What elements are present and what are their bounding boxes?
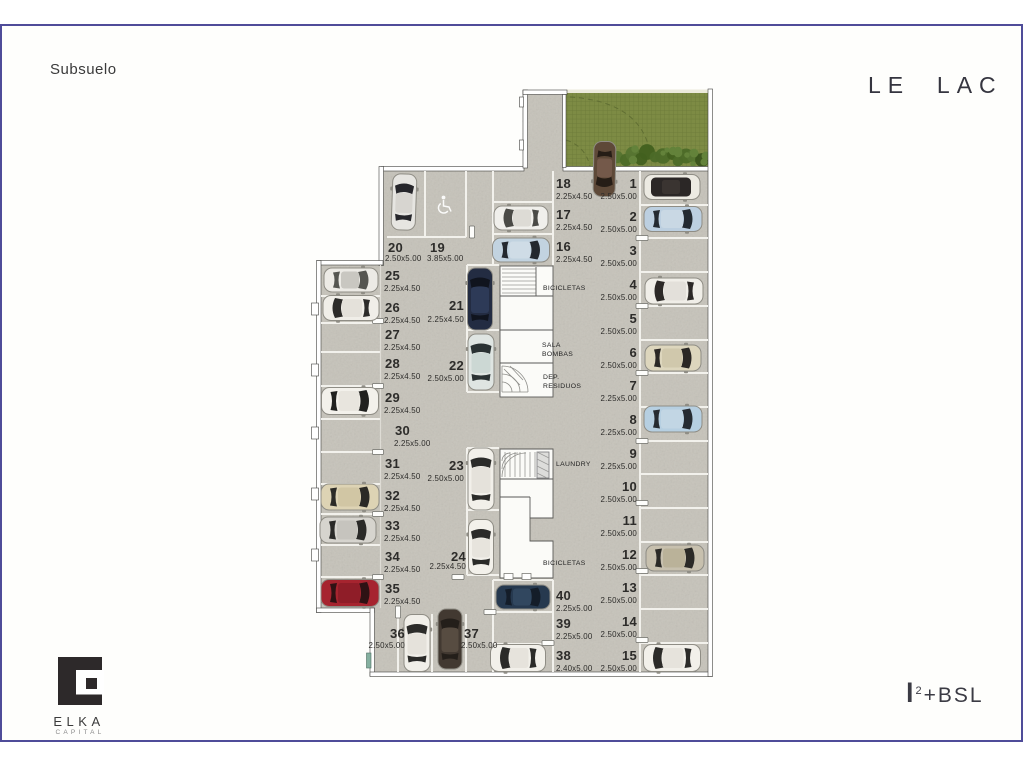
- svg-text:27: 27: [385, 327, 400, 342]
- svg-text:34: 34: [385, 549, 401, 564]
- svg-text:28: 28: [385, 356, 400, 371]
- svg-text:DEP.: DEP.: [543, 374, 559, 381]
- svg-text:29: 29: [385, 390, 400, 405]
- svg-text:2.25x5.00: 2.25x5.00: [394, 439, 431, 448]
- svg-text:2.25x4.50: 2.25x4.50: [556, 223, 593, 232]
- svg-text:2.50x5.00: 2.50x5.00: [428, 374, 465, 383]
- svg-text:2.50x5.00: 2.50x5.00: [601, 630, 638, 639]
- svg-text:2.50x5.00: 2.50x5.00: [601, 596, 638, 605]
- svg-text:LAUNDRY: LAUNDRY: [556, 461, 591, 468]
- svg-text:2.50x5.00: 2.50x5.00: [601, 529, 638, 538]
- svg-text:33: 33: [385, 518, 400, 533]
- svg-text:2.25x4.50: 2.25x4.50: [384, 343, 421, 352]
- svg-text:2.50x5.00: 2.50x5.00: [369, 641, 406, 650]
- svg-text:6: 6: [629, 345, 637, 360]
- svg-text:2.25x4.50: 2.25x4.50: [384, 504, 421, 513]
- svg-text:2.25x4.50: 2.25x4.50: [384, 284, 421, 293]
- svg-text:4: 4: [629, 277, 637, 292]
- svg-text:2.25x5.00: 2.25x5.00: [601, 394, 638, 403]
- svg-text:22: 22: [449, 358, 464, 373]
- svg-text:RESIDUOS: RESIDUOS: [543, 383, 581, 390]
- svg-text:8: 8: [629, 412, 637, 427]
- svg-text:2.25x4.50: 2.25x4.50: [384, 565, 421, 574]
- svg-text:BOMBAS: BOMBAS: [542, 351, 573, 358]
- svg-text:13: 13: [622, 580, 637, 595]
- svg-text:20: 20: [388, 240, 403, 255]
- svg-text:2.50x5.00: 2.50x5.00: [601, 563, 638, 572]
- svg-text:26: 26: [385, 300, 400, 315]
- svg-text:12: 12: [622, 547, 637, 562]
- svg-text:2.25x4.50: 2.25x4.50: [384, 372, 421, 381]
- svg-text:2.50x5.00: 2.50x5.00: [385, 254, 422, 263]
- svg-text:3.85x5.00: 3.85x5.00: [427, 254, 464, 263]
- svg-text:35: 35: [385, 581, 400, 596]
- svg-text:2.50x5.00: 2.50x5.00: [601, 327, 638, 336]
- svg-text:9: 9: [629, 446, 637, 461]
- svg-text:38: 38: [556, 648, 571, 663]
- svg-text:SALA: SALA: [542, 342, 561, 349]
- svg-text:2.50x5.00: 2.50x5.00: [428, 474, 465, 483]
- svg-text:2.25x4.50: 2.25x4.50: [384, 472, 421, 481]
- svg-text:3: 3: [629, 243, 637, 258]
- svg-text:32: 32: [385, 488, 400, 503]
- svg-text:2: 2: [629, 209, 637, 224]
- svg-text:37: 37: [464, 626, 479, 641]
- svg-text:40: 40: [556, 588, 571, 603]
- svg-text:2.25x4.50: 2.25x4.50: [384, 316, 421, 325]
- svg-text:2.50x5.00: 2.50x5.00: [601, 293, 638, 302]
- svg-text:36: 36: [390, 626, 405, 641]
- svg-text:2.25x4.50: 2.25x4.50: [556, 192, 593, 201]
- svg-text:19: 19: [430, 240, 445, 255]
- svg-text:2.25x5.00: 2.25x5.00: [556, 604, 593, 613]
- svg-text:2.50x5.00: 2.50x5.00: [601, 664, 638, 673]
- svg-text:2.50x5.00: 2.50x5.00: [601, 192, 638, 201]
- svg-text:2.25x4.50: 2.25x4.50: [384, 406, 421, 415]
- svg-text:18: 18: [556, 176, 571, 191]
- svg-text:10: 10: [622, 479, 637, 494]
- svg-text:2.50x5.00: 2.50x5.00: [601, 495, 638, 504]
- svg-text:14: 14: [622, 614, 638, 629]
- svg-text:2.25x4.50: 2.25x4.50: [428, 315, 465, 324]
- svg-text:2.25x4.50: 2.25x4.50: [384, 597, 421, 606]
- svg-text:15: 15: [622, 648, 637, 663]
- svg-text:21: 21: [449, 298, 464, 313]
- svg-text:2.25x4.50: 2.25x4.50: [556, 255, 593, 264]
- svg-text:BICICLETAS: BICICLETAS: [543, 285, 586, 292]
- svg-text:31: 31: [385, 456, 400, 471]
- svg-text:11: 11: [623, 513, 637, 528]
- svg-text:BICICLETAS: BICICLETAS: [543, 560, 586, 567]
- svg-text:2.25x4.50: 2.25x4.50: [430, 562, 467, 571]
- svg-text:2.50x5.00: 2.50x5.00: [461, 641, 498, 650]
- svg-text:2.25x5.00: 2.25x5.00: [556, 632, 593, 641]
- svg-text:23: 23: [449, 458, 464, 473]
- svg-text:39: 39: [556, 616, 571, 631]
- svg-text:16: 16: [556, 239, 571, 254]
- svg-text:5: 5: [629, 311, 637, 326]
- svg-text:17: 17: [556, 207, 571, 222]
- svg-text:2.25x5.00: 2.25x5.00: [601, 428, 638, 437]
- svg-text:2.40x5.00: 2.40x5.00: [556, 664, 593, 673]
- svg-text:30: 30: [395, 423, 410, 438]
- svg-text:2.25x4.50: 2.25x4.50: [384, 534, 421, 543]
- svg-text:25: 25: [385, 268, 400, 283]
- svg-text:7: 7: [629, 378, 637, 393]
- svg-text:2.50x5.00: 2.50x5.00: [601, 361, 638, 370]
- svg-text:1: 1: [629, 176, 637, 191]
- svg-text:2.50x5.00: 2.50x5.00: [601, 225, 638, 234]
- svg-text:2.25x5.00: 2.25x5.00: [601, 462, 638, 471]
- svg-text:2.50x5.00: 2.50x5.00: [601, 259, 638, 268]
